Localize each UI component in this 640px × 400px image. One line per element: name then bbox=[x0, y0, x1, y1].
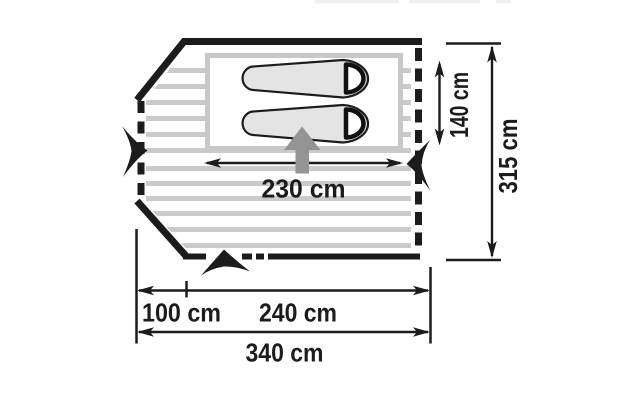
inner-width-label: 230 cm bbox=[262, 174, 346, 204]
dimension-total-width: 340 cm bbox=[137, 327, 430, 367]
artifact-bar bbox=[315, 0, 399, 4]
floor-stripe bbox=[146, 243, 411, 248]
floor-stripe bbox=[146, 227, 411, 232]
porch-width-label: 100 cm bbox=[142, 298, 221, 328]
tent-floorplan-page: 230 cm 140 cm 315 cm bbox=[0, 0, 640, 400]
main-width-label: 240 cm bbox=[259, 298, 337, 328]
dimension-porch-and-main: 100 cm 240 cm bbox=[137, 286, 430, 328]
dimension-inner-depth: 140 cm bbox=[435, 61, 474, 146]
sleeping-bag-1-hood bbox=[346, 65, 364, 93]
floor-stripe bbox=[146, 166, 411, 171]
sleeping-bag-2-hood bbox=[346, 110, 364, 138]
tent-floorplan-diagram: 230 cm 140 cm 315 cm bbox=[0, 0, 640, 400]
entrance-marker-bottom-icon bbox=[201, 250, 250, 276]
artifact-bar bbox=[409, 0, 480, 4]
total-depth-label: 315 cm bbox=[493, 119, 523, 194]
top-edge-artifacts bbox=[315, 0, 511, 4]
artifact-bar bbox=[496, 0, 511, 4]
inner-depth-label: 140 cm bbox=[444, 72, 474, 138]
floor-stripe bbox=[146, 211, 411, 216]
total-width-label: 340 cm bbox=[246, 338, 324, 368]
